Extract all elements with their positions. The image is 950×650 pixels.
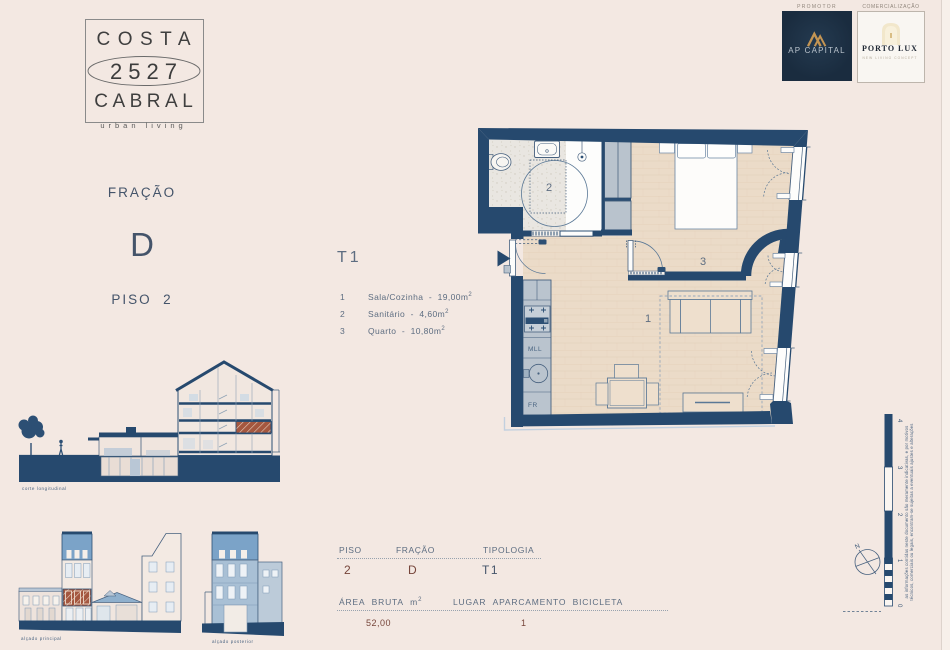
svg-text:corte longitudinal: corte longitudinal <box>22 486 67 491</box>
svg-text:técnicos, comerciais ou legais: técnicos, comerciais ou legais, encontra… <box>909 423 914 600</box>
svg-text:alçado principal: alçado principal <box>21 636 62 641</box>
svg-text:4: 4 <box>896 419 902 423</box>
svg-text:alçado posterior: alçado posterior <box>212 639 254 644</box>
svg-text:3: 3 <box>896 466 902 470</box>
svg-text:0: 0 <box>896 604 902 608</box>
svg-text:2: 2 <box>896 513 902 517</box>
svg-text:1: 1 <box>896 559 902 563</box>
svg-text:N: N <box>854 542 861 550</box>
